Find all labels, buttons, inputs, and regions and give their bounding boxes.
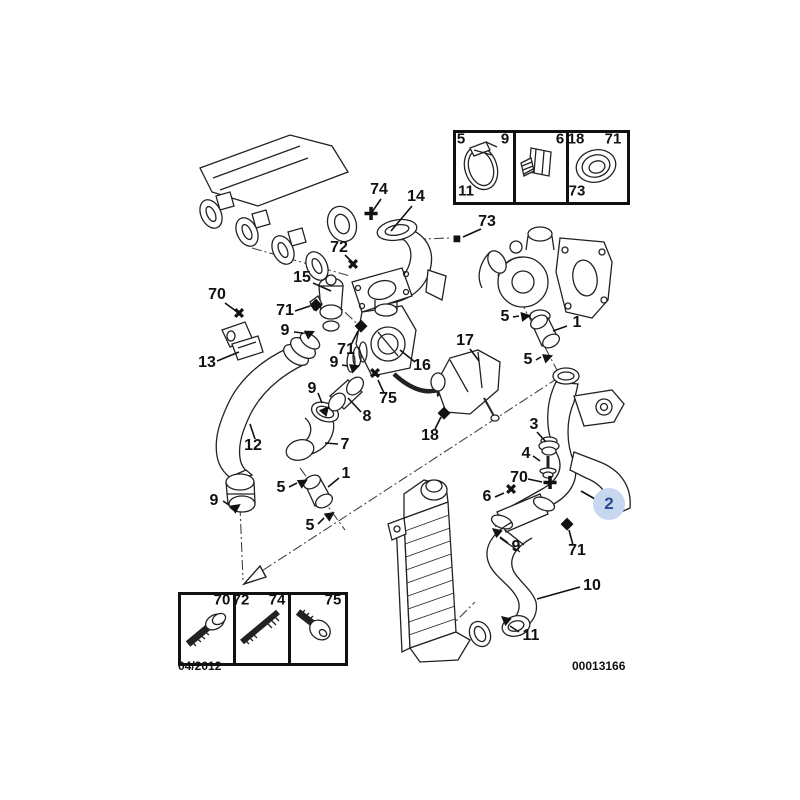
exhaust-manifold-drawing bbox=[196, 135, 362, 284]
callout-4[interactable]: 4 bbox=[522, 446, 531, 462]
callout-1b[interactable]: 1 bbox=[573, 315, 582, 331]
callout-5c[interactable]: 5 bbox=[501, 309, 510, 325]
callout-70a[interactable]: 70 bbox=[208, 287, 226, 303]
callout-12[interactable]: 12 bbox=[244, 438, 262, 454]
callout-9d[interactable]: 9 bbox=[210, 493, 219, 509]
callout-6[interactable]: 6 bbox=[483, 489, 492, 505]
screw-cross-marker-icon: ✖ bbox=[505, 483, 518, 498]
revision-date: 04/2012 bbox=[178, 660, 221, 672]
diagram-line-art bbox=[0, 0, 800, 800]
callout-3[interactable]: 3 bbox=[530, 417, 539, 433]
parts-diagram-page: 5 9 11 6 18 71 73 70 72 74 75 74 14 73 7… bbox=[0, 0, 800, 800]
callout-9e[interactable]: 9 bbox=[512, 539, 521, 555]
callout-16[interactable]: 16 bbox=[413, 358, 431, 374]
callout-75[interactable]: 75 bbox=[379, 391, 397, 407]
stud-plus-marker-icon: ✚ bbox=[542, 474, 557, 492]
bracket-13-drawing bbox=[222, 322, 263, 360]
callout-9b[interactable]: 9 bbox=[330, 355, 339, 371]
inset-label-9: 9 bbox=[501, 132, 509, 147]
stud-plus-marker-icon: ✚ bbox=[363, 205, 378, 223]
inset-divider bbox=[288, 595, 291, 663]
callout-5d[interactable]: 5 bbox=[524, 352, 533, 368]
callout-9c[interactable]: 9 bbox=[308, 381, 317, 397]
inset-label-75: 75 bbox=[325, 593, 342, 608]
inset-box-bottom-left bbox=[178, 592, 348, 666]
callout-5b[interactable]: 5 bbox=[306, 518, 315, 534]
callout-11[interactable]: 11 bbox=[523, 628, 540, 644]
inset-label-72: 72 bbox=[233, 593, 250, 608]
seal-diamond-marker-icon: ◆ bbox=[354, 317, 367, 334]
inset-label-70: 70 bbox=[214, 593, 231, 608]
turbocharger-drawing bbox=[479, 227, 612, 322]
nut-square-marker-icon: ■ bbox=[453, 231, 461, 245]
screw-cross-marker-icon: ✖ bbox=[369, 367, 382, 382]
screw-cross-marker-icon: ✖ bbox=[347, 258, 360, 273]
seal-diamond-marker-icon: ◆ bbox=[437, 404, 450, 421]
callout-5a[interactable]: 5 bbox=[277, 480, 286, 496]
callout-1a[interactable]: 1 bbox=[342, 466, 351, 482]
callout-18[interactable]: 18 bbox=[421, 428, 439, 444]
mount-and-screw-drawing bbox=[539, 437, 559, 478]
callout-71c[interactable]: 71 bbox=[568, 543, 586, 559]
intercooler-drawing bbox=[388, 480, 495, 662]
inset-label-5: 5 bbox=[457, 132, 465, 147]
inset-label-6: 6 bbox=[556, 132, 564, 147]
inset-divider bbox=[513, 133, 516, 202]
callout-13[interactable]: 13 bbox=[198, 355, 216, 371]
open-arrowhead bbox=[244, 566, 266, 584]
inset-label-74: 74 bbox=[269, 593, 286, 608]
callout-74[interactable]: 74 bbox=[370, 182, 388, 198]
callout-9a[interactable]: 9 bbox=[281, 323, 290, 339]
inset-label-73: 73 bbox=[569, 184, 586, 199]
highlighted-callout-2-label: 2 bbox=[604, 494, 613, 514]
clamp-arrow-marker-icon: ▶ bbox=[520, 308, 532, 323]
document-number: 00013166 bbox=[572, 660, 625, 672]
screw-cross-marker-icon: ✖ bbox=[233, 307, 246, 322]
seal-diamond-marker-icon: ◆ bbox=[560, 515, 573, 532]
callout-71b[interactable]: 71 bbox=[337, 342, 355, 358]
inset-label-71: 71 bbox=[605, 132, 622, 147]
callout-17[interactable]: 17 bbox=[456, 333, 474, 349]
callout-72[interactable]: 72 bbox=[330, 240, 348, 256]
inset-label-18: 18 bbox=[568, 132, 585, 147]
callout-15[interactable]: 15 bbox=[293, 270, 311, 286]
callout-7[interactable]: 7 bbox=[341, 437, 350, 453]
highlighted-callout-2[interactable]: 2 bbox=[593, 488, 625, 520]
callout-14[interactable]: 14 bbox=[407, 189, 425, 205]
inset-box-top-right bbox=[453, 130, 630, 205]
callout-73[interactable]: 73 bbox=[478, 214, 496, 230]
inset-label-11: 11 bbox=[458, 184, 474, 199]
turbo-elbow-drawing bbox=[352, 217, 446, 312]
sleeve-1b-drawing bbox=[528, 312, 562, 350]
seal-diamond-marker-icon: ◆ bbox=[309, 296, 322, 313]
callout-10[interactable]: 10 bbox=[583, 578, 601, 594]
callout-71a[interactable]: 71 bbox=[276, 303, 294, 319]
callout-8[interactable]: 8 bbox=[363, 409, 372, 425]
